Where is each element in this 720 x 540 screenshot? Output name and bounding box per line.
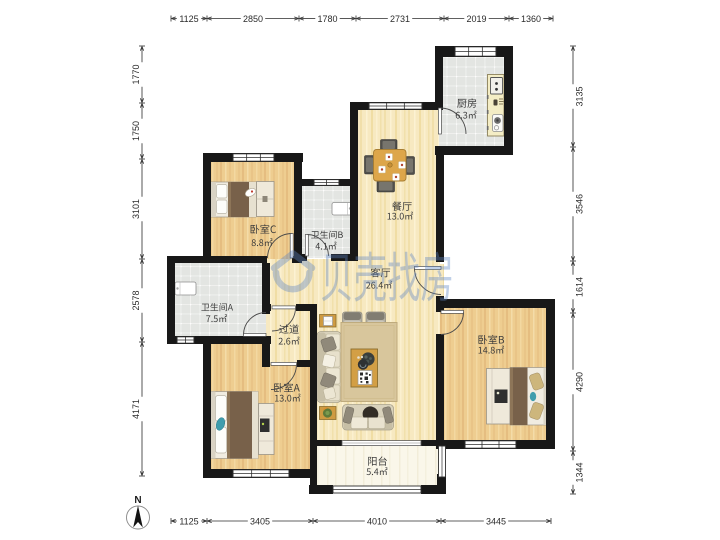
- svg-text:4171: 4171: [131, 399, 141, 419]
- svg-text:3101: 3101: [131, 199, 141, 219]
- svg-text:4010: 4010: [367, 516, 387, 526]
- svg-text:3405: 3405: [250, 516, 270, 526]
- svg-text:1344: 1344: [575, 462, 585, 482]
- svg-text:1770: 1770: [131, 64, 141, 84]
- svg-text:4290: 4290: [575, 372, 585, 392]
- svg-text:1125: 1125: [179, 14, 198, 24]
- svg-text:2850: 2850: [243, 14, 263, 24]
- svg-text:1125: 1125: [179, 516, 198, 526]
- svg-text:1360: 1360: [521, 14, 541, 24]
- svg-text:1750: 1750: [131, 121, 141, 141]
- svg-text:1780: 1780: [317, 14, 337, 24]
- svg-text:2578: 2578: [131, 290, 141, 310]
- svg-text:2019: 2019: [466, 14, 486, 24]
- svg-text:1614: 1614: [575, 277, 585, 297]
- svg-text:3135: 3135: [575, 86, 585, 106]
- svg-text:3546: 3546: [575, 194, 585, 214]
- svg-text:3445: 3445: [486, 516, 506, 526]
- svg-text:2731: 2731: [390, 14, 410, 24]
- svg-text:N: N: [134, 495, 141, 506]
